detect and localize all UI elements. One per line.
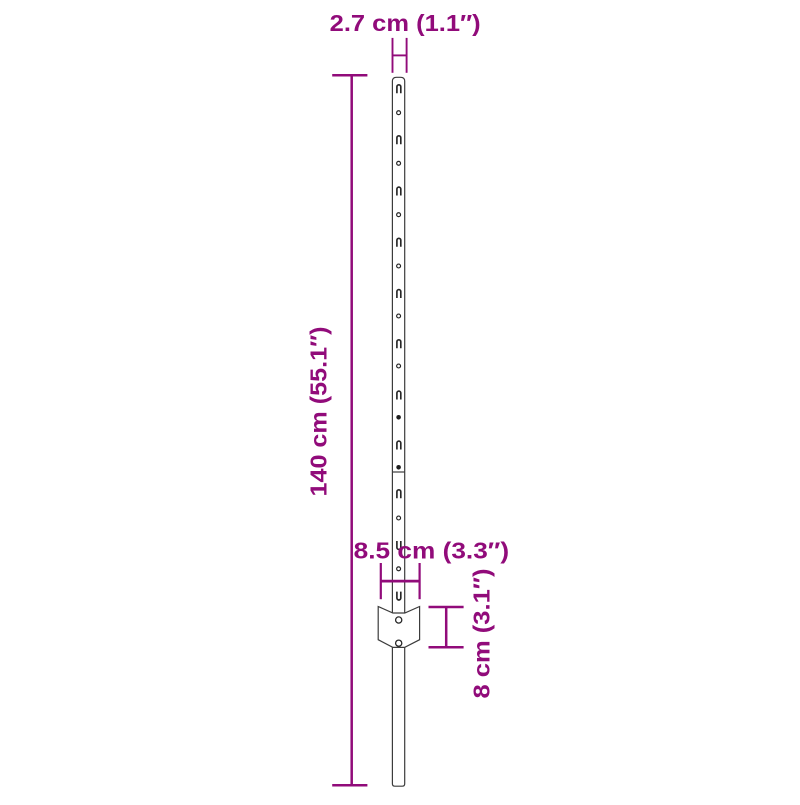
svg-text:140 cm (55.1″): 140 cm (55.1″) xyxy=(305,327,331,497)
svg-text:8.5 cm (3.3″): 8.5 cm (3.3″) xyxy=(354,537,509,563)
svg-text:2.7 cm (1.1″): 2.7 cm (1.1″) xyxy=(330,10,481,36)
svg-text:8 cm (3.1″): 8 cm (3.1″) xyxy=(468,569,494,699)
